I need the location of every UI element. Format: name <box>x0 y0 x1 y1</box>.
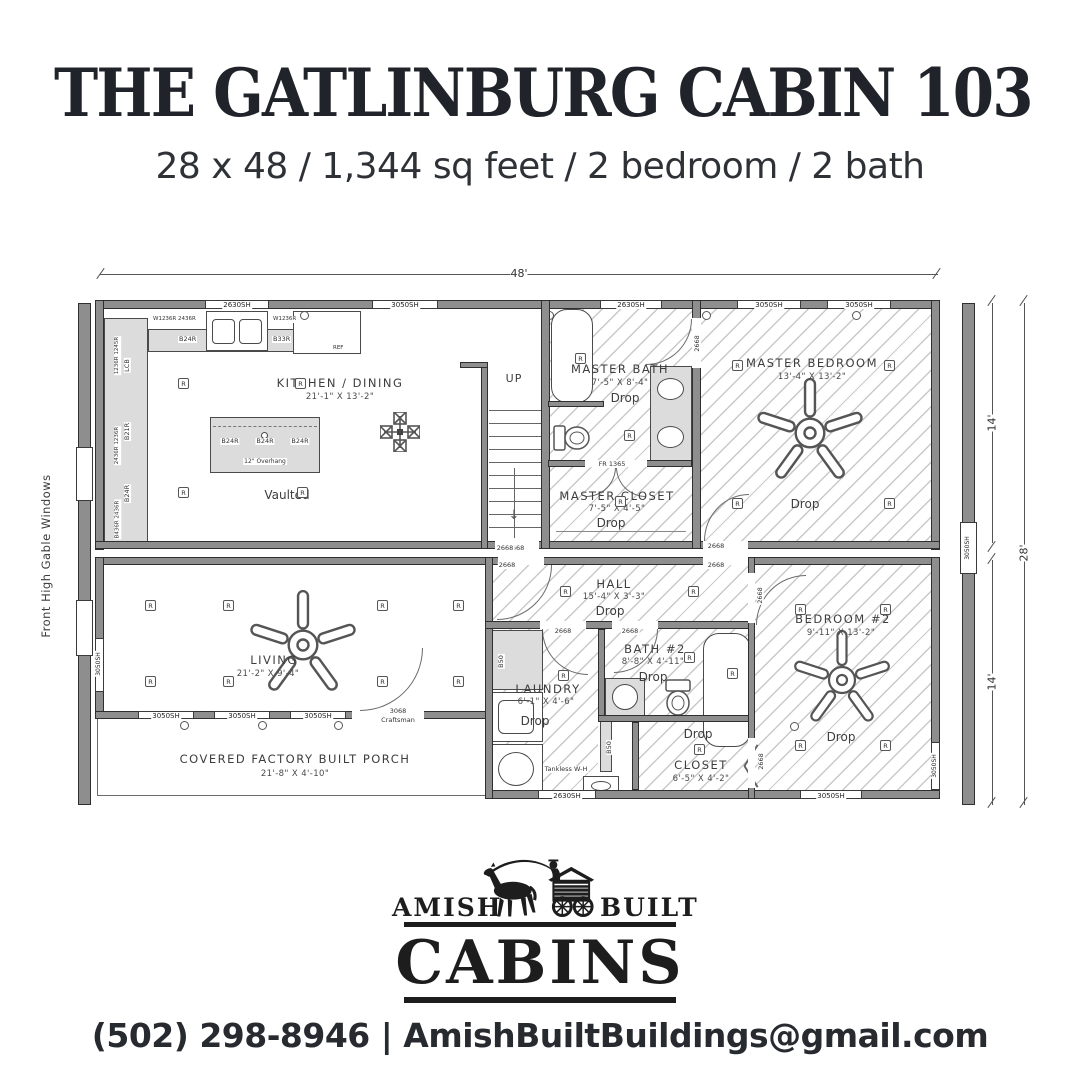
wall-tub-alcove <box>548 401 604 407</box>
ceiling-fan-icon <box>248 590 358 700</box>
logo-word-built: BUILT <box>600 893 688 922</box>
room-dims-kitchen: 21'-1" X 13'-2" <box>306 392 374 402</box>
ref-label: REF <box>332 345 344 352</box>
recessed-light-marker: R <box>884 360 895 371</box>
logo-divider-bottom <box>404 997 676 1003</box>
contact-info: (502) 298-8946 | AmishBuiltBuildings@gma… <box>0 1016 1080 1055</box>
ceiling-fan-icon <box>755 378 865 488</box>
window-label: 2630SH <box>222 301 252 309</box>
window-label: 3050SH <box>303 712 333 720</box>
vanity-sink <box>657 426 684 448</box>
wall <box>485 557 493 799</box>
recessed-light-marker: R <box>453 600 464 611</box>
page-title: THE GATLINBURG CABIN 103 <box>54 54 1026 132</box>
door-label: Craftsman <box>380 717 416 724</box>
island-cabinet-label: B24R <box>290 438 309 445</box>
wall-light <box>180 721 189 730</box>
room-name-bath2: BATH #2 <box>624 642 686 656</box>
wall-light <box>790 722 799 731</box>
room-name-master-bedroom: MASTER BEDROOM <box>746 356 878 370</box>
sink-basin <box>212 319 235 344</box>
wall <box>931 300 940 550</box>
window-label: 3050SH <box>227 712 257 720</box>
window-label: 3050SH <box>390 301 420 309</box>
room-dims-living: 21'-2" X 9'-4" <box>237 669 300 679</box>
laundry-sink-basin <box>498 752 534 786</box>
dim-label-14-bottom: 14' <box>986 673 999 690</box>
room-dims-laundry: 6'-1" X 4'-6" <box>518 697 575 707</box>
room-name-master-bath: MASTER BATH <box>571 362 669 376</box>
recessed-light-marker: R <box>377 600 388 611</box>
wall-closet2 <box>632 722 639 790</box>
recessed-light-marker: R <box>880 604 891 615</box>
room-dims-closet2: 6'-5" X 4'-2" <box>673 774 730 784</box>
room-dims-bath2: 8'-8" X 4'-11" <box>622 657 685 667</box>
recessed-light-marker: R <box>178 487 189 498</box>
recessed-light-marker: R <box>223 676 234 687</box>
room-name-laundry: LAUNDRY <box>515 682 580 696</box>
recessed-light-marker: R <box>884 498 895 509</box>
door-opening <box>748 738 755 788</box>
wall <box>541 300 550 549</box>
window-label: 3050SH <box>964 535 972 561</box>
dim-label-48: 48' <box>510 267 527 280</box>
gable-window <box>76 447 93 501</box>
cabinet-label: B50 <box>498 654 505 669</box>
wall-stairs <box>481 365 488 549</box>
recessed-light-marker: R <box>297 487 308 498</box>
ceiling-note-drop: Drop <box>596 604 625 618</box>
recessed-light-marker: R <box>732 360 743 371</box>
horse-and-wagon-logo-icon <box>478 850 602 924</box>
dim-label-28: 28' <box>1018 544 1031 561</box>
room-name-living: LIVING <box>250 653 298 667</box>
door-label: 2668 <box>554 628 573 635</box>
recessed-light-marker: R <box>377 676 388 687</box>
wall <box>95 300 104 550</box>
gable-window <box>76 600 93 656</box>
cabinet-label: 2436R 1236R <box>114 426 121 465</box>
cabinet-label: B50 <box>606 740 613 755</box>
door-label: 2668 <box>496 545 515 552</box>
logo-word-cabins: CABINS <box>0 928 1080 998</box>
room-name-bedroom2: BEDROOM #2 <box>795 612 891 626</box>
recessed-light-marker: R <box>145 676 156 687</box>
recessed-light-marker: R <box>575 353 586 364</box>
cabinet-label: B21R <box>124 422 131 441</box>
recessed-light-marker: R <box>295 378 306 389</box>
recessed-light-marker: R <box>223 600 234 611</box>
recessed-light-marker: R <box>684 652 695 663</box>
cabinet-label: 1236R 1245R <box>114 336 121 375</box>
toilet-icon <box>658 678 698 718</box>
poster-canvas: THE GATLINBURG CABIN 103 28 x 48 / 1,344… <box>0 0 1080 1080</box>
ceiling-note-drop: Drop <box>521 714 550 728</box>
stairs-center-line <box>514 468 515 538</box>
wall-laundry-bath2 <box>598 629 605 719</box>
window-label: 3050SH <box>151 712 181 720</box>
door-label: 2668 <box>694 334 701 353</box>
closet-shelf-line <box>556 531 686 532</box>
stairs-up-label: UP <box>506 372 523 385</box>
wall-bath2-closet <box>598 715 755 722</box>
recessed-light-marker: R <box>732 498 743 509</box>
vanity-sink <box>657 378 684 400</box>
room-dims-hall: 15'-4" X 3'-3" <box>583 592 646 602</box>
bathtub <box>551 309 593 403</box>
door-label: 2668 <box>757 586 764 605</box>
ceiling-fan-icon <box>792 630 892 730</box>
window-label: 3050SH <box>754 301 784 309</box>
door-label: 2668 <box>707 562 726 569</box>
recessed-light-marker: R <box>560 586 571 597</box>
room-dims-master-bedroom: 13'-4" X 13'-2" <box>778 372 846 382</box>
ceiling-note-drop: Drop <box>791 497 820 511</box>
door-label: 2668 <box>498 562 517 569</box>
room-name-hall: HALL <box>596 577 631 591</box>
dim-label-14-top: 14' <box>986 414 999 431</box>
window-label: 3050SH <box>931 753 939 779</box>
stairs-arrow: ↓ <box>509 508 520 523</box>
logo-divider-top <box>404 922 676 927</box>
logo-word-amish: AMISH <box>392 893 480 922</box>
recessed-light-marker: R <box>727 668 738 679</box>
door-label: 2668 <box>758 752 765 771</box>
window-label: 3050SH <box>844 301 874 309</box>
ceiling-note-drop: Drop <box>684 727 713 741</box>
ceiling-note-drop: Drop <box>597 516 626 530</box>
door-label: 2668 <box>707 543 726 550</box>
recessed-light-marker: R <box>615 496 626 507</box>
door-label: 3068 <box>389 708 408 715</box>
wall-light <box>852 311 861 320</box>
window-label: 2630SH <box>552 792 582 800</box>
wall-light <box>258 721 267 730</box>
shower-drain <box>612 684 638 710</box>
room-dims-master-bath: 7'-5" X 8'-4" <box>592 378 649 388</box>
island-cabinet-label: B24R <box>255 438 274 445</box>
ceiling-note-drop: Drop <box>639 670 668 684</box>
cabinet-label: W1236R <box>272 316 297 323</box>
cabinet-label: B24R <box>178 336 197 343</box>
wall-light <box>334 721 343 730</box>
recessed-light-marker: R <box>795 604 806 615</box>
cabinet-label: B436R 2436R <box>114 500 121 540</box>
recessed-light-marker: R <box>453 676 464 687</box>
island-cabinet-label: B24R <box>220 438 239 445</box>
door-opening <box>748 573 755 623</box>
recessed-light-marker: R <box>624 430 635 441</box>
cabinet-label: W1236R 2436R <box>152 316 197 323</box>
tankless-label: Tankless W-H <box>544 766 589 773</box>
window-label: 3050SH <box>95 651 103 677</box>
room-name-closet2: CLOSET <box>674 758 728 772</box>
toilet-icon <box>552 418 592 458</box>
cabinet-label: LCB <box>124 358 131 373</box>
recessed-light-marker: R <box>145 600 156 611</box>
window-label: 3050SH <box>816 792 846 800</box>
fr-label: FR 1365 <box>598 461 627 468</box>
island-overhang-label: 12" Overhang <box>243 458 287 465</box>
sink-basin <box>239 319 262 344</box>
recessed-light-marker: R <box>558 670 569 681</box>
recessed-light-marker: R <box>694 744 705 755</box>
wall-stub <box>460 362 488 368</box>
recessed-light-marker: R <box>178 378 189 389</box>
recessed-light-marker: R <box>688 586 699 597</box>
room-dims-bedroom2: 9'-11" X 13'-2" <box>807 628 875 638</box>
cabinet-label: B33R <box>272 336 291 343</box>
cabinet-label: B24R <box>124 484 131 503</box>
left-note: Front High Gable Windows <box>39 474 53 637</box>
gable-wall-left <box>78 303 91 805</box>
door-label: 2668 <box>621 628 640 635</box>
ceiling-note-drop: Drop <box>611 391 640 405</box>
window-label: 2630SH <box>616 301 646 309</box>
room-dims-porch: 21'-8" X 4'-10" <box>261 769 329 779</box>
page-subtitle: 28 x 48 / 1,344 sq feet / 2 bedroom / 2 … <box>0 146 1080 187</box>
recessed-light-marker: R <box>795 740 806 751</box>
recessed-light-marker: R <box>880 740 891 751</box>
wall-light <box>300 311 309 320</box>
ceiling-fan-icon <box>380 412 420 452</box>
room-name-porch: COVERED FACTORY BUILT PORCH <box>180 752 411 766</box>
door-arc <box>360 648 423 711</box>
wall-light <box>702 311 711 320</box>
island-overhang-line <box>213 426 317 427</box>
ceiling-note-drop: Drop <box>827 730 856 744</box>
